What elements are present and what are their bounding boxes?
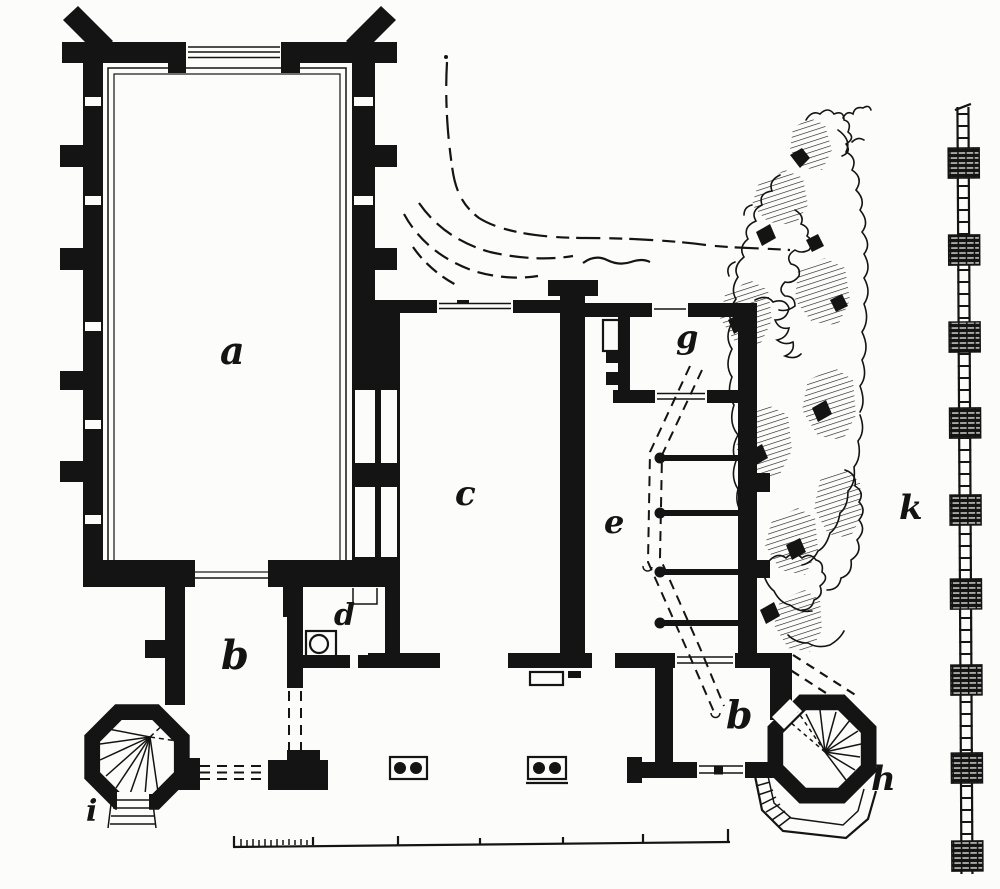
label-passage-b: b: [221, 636, 249, 676]
label-hall-a: a: [220, 332, 245, 370]
label-tower-i: i: [86, 797, 97, 827]
label-room-g: g: [676, 321, 698, 353]
wall-k-piers: [948, 148, 983, 871]
label-wall-k: k: [899, 491, 923, 525]
label-font-d: d: [334, 601, 355, 631]
label-stair-e: e: [604, 506, 624, 538]
plan-drawing: [0, 0, 1000, 889]
label-tower-h: h: [871, 762, 896, 796]
label-room-c: c: [455, 477, 476, 511]
label-room-b2: b: [726, 696, 753, 734]
engraving-plan: a b c d e g b h i k: [0, 0, 1000, 889]
